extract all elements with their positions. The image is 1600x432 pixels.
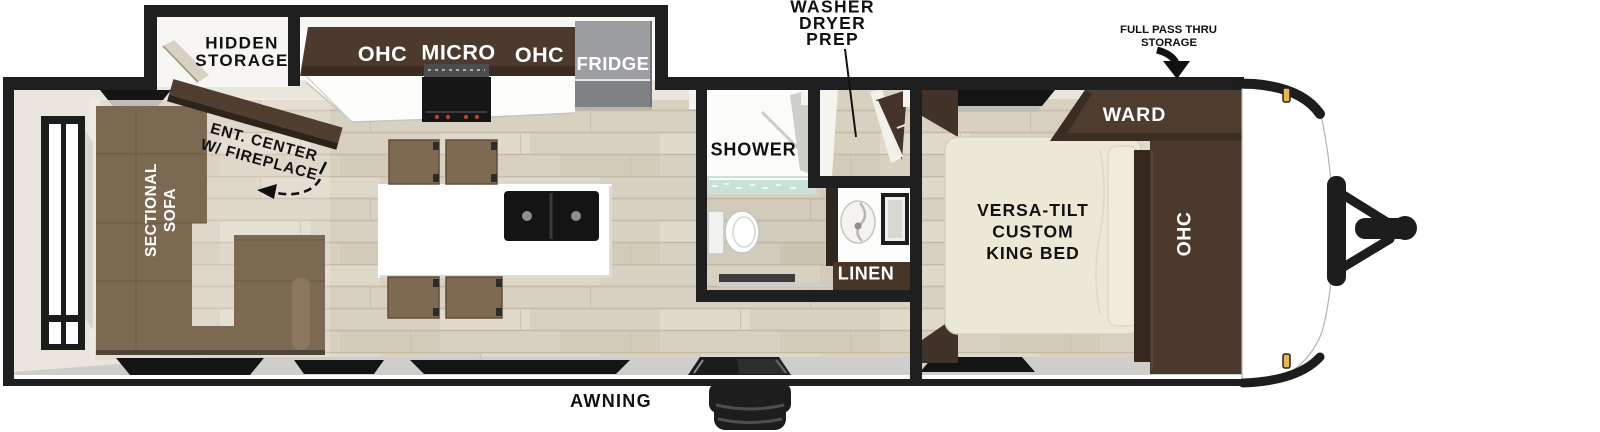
svg-text:PREP: PREP bbox=[806, 29, 859, 49]
svg-text:FRIDGE: FRIDGE bbox=[577, 53, 650, 74]
svg-text:OHC: OHC bbox=[515, 43, 564, 67]
svg-text:VERSA-TILT: VERSA-TILT bbox=[977, 200, 1089, 220]
svg-text:WARD: WARD bbox=[1103, 104, 1167, 126]
svg-text:STORAGE: STORAGE bbox=[1141, 37, 1198, 49]
svg-text:LINEN: LINEN bbox=[838, 264, 895, 284]
svg-text:KING BED: KING BED bbox=[986, 243, 1080, 263]
svg-text:SOFA: SOFA bbox=[162, 188, 179, 232]
svg-text:MICRO: MICRO bbox=[421, 41, 495, 65]
svg-text:OHC: OHC bbox=[1174, 212, 1196, 257]
svg-text:STORAGE: STORAGE bbox=[195, 51, 289, 70]
svg-text:CUSTOM: CUSTOM bbox=[992, 222, 1074, 242]
svg-text:OHC: OHC bbox=[358, 42, 407, 66]
svg-text:FULL PASS THRU: FULL PASS THRU bbox=[1120, 24, 1217, 36]
svg-text:SECTIONAL: SECTIONAL bbox=[143, 163, 160, 257]
svg-text:AWNING: AWNING bbox=[570, 391, 652, 411]
svg-text:SHOWER: SHOWER bbox=[711, 140, 797, 160]
svg-text:HIDDEN: HIDDEN bbox=[205, 34, 279, 53]
